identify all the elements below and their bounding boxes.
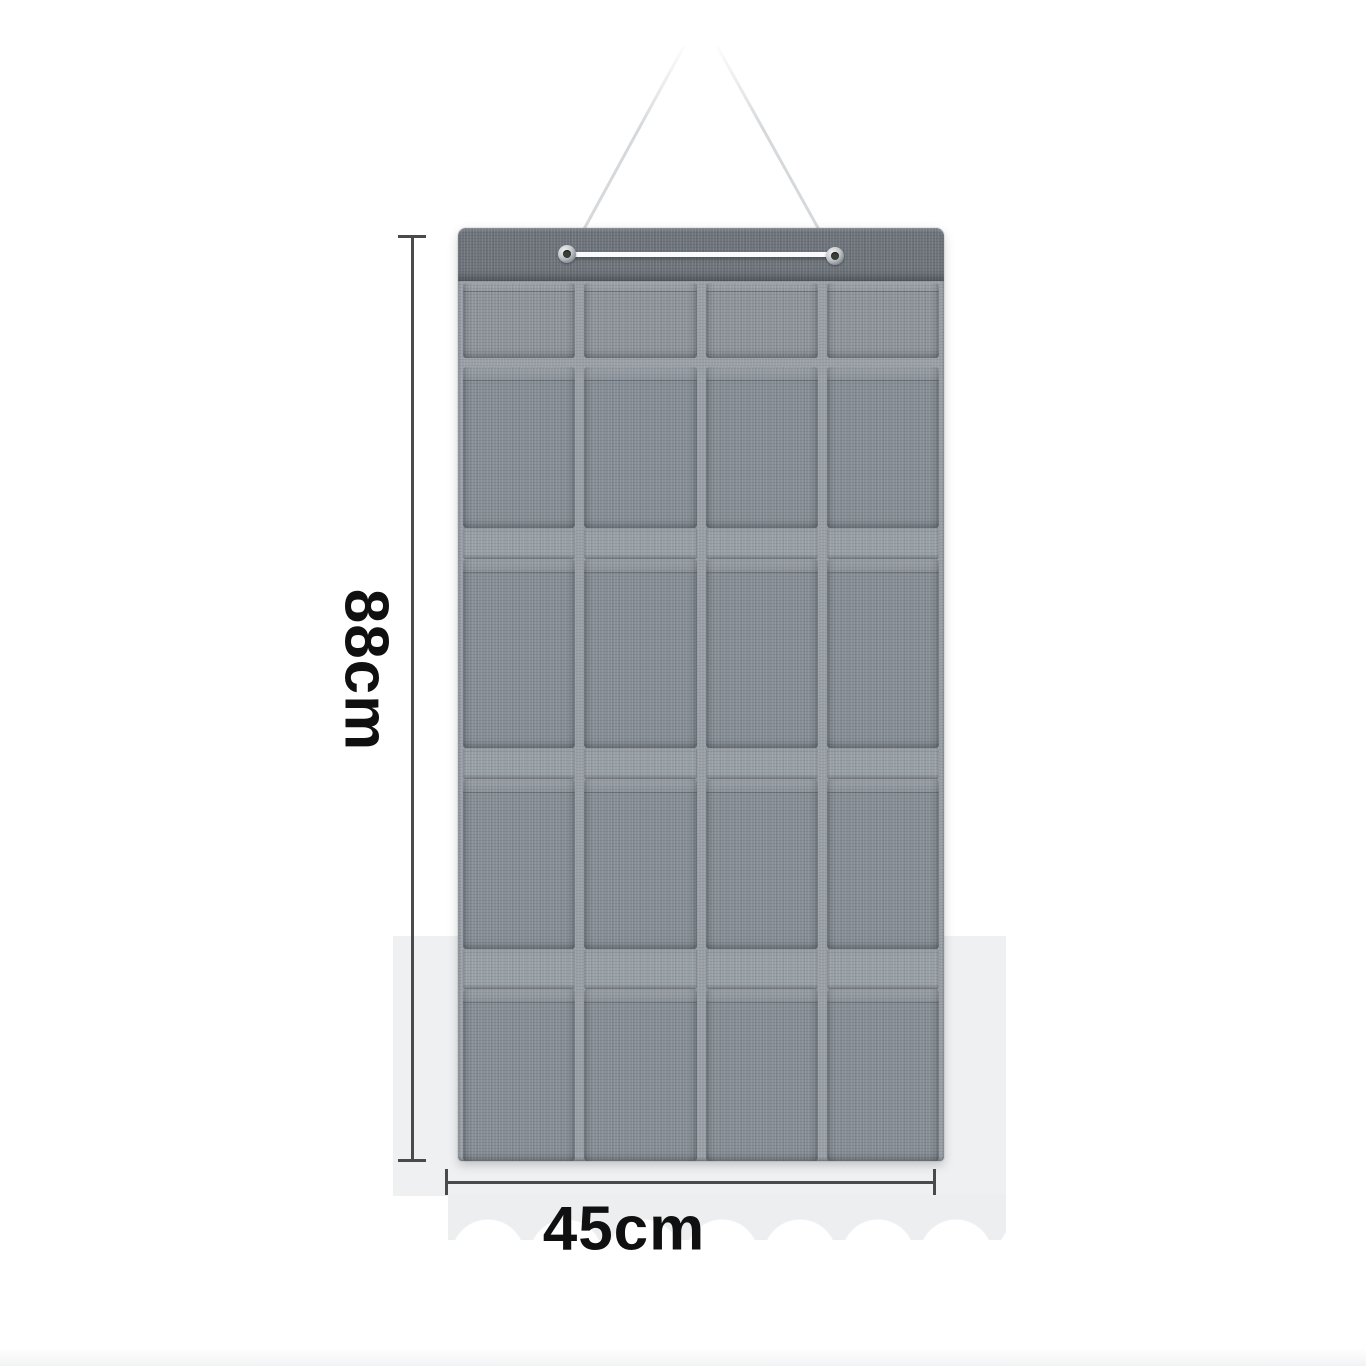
pocket-row-2	[463, 367, 939, 528]
pocket-row-1	[463, 283, 939, 358]
hem-rail-2	[463, 748, 939, 779]
pocket	[584, 779, 696, 949]
hanging-cord	[570, 252, 832, 257]
rail-seg	[706, 949, 818, 989]
pocket	[463, 559, 575, 748]
rail-seg	[706, 528, 818, 559]
hem-rail-1	[463, 528, 939, 559]
height-dimension-line	[411, 236, 414, 1162]
pocket	[706, 283, 818, 358]
rail-seg	[706, 748, 818, 779]
grommet-right	[826, 247, 844, 265]
pocket	[706, 367, 818, 528]
pocket	[827, 283, 939, 358]
pocket	[706, 779, 818, 949]
organizer-header-band	[458, 228, 944, 281]
rail-seg	[463, 528, 575, 559]
width-label: 45cm	[543, 1194, 706, 1265]
width-dimension-cap-right	[933, 1169, 936, 1195]
rail-seg	[463, 949, 575, 989]
product-photo: 88cm 45cm	[0, 0, 1366, 1366]
pocket	[706, 989, 818, 1161]
width-dimension-line	[446, 1181, 936, 1184]
rail-seg	[827, 949, 939, 989]
organizer-panel	[458, 228, 944, 1161]
pocket	[463, 367, 575, 528]
pocket	[827, 779, 939, 949]
pocket-row-5	[463, 989, 939, 1161]
pocket	[827, 559, 939, 748]
rail-seg	[584, 528, 696, 559]
rail-seg	[827, 528, 939, 559]
pocket	[827, 989, 939, 1161]
pocket-row-4	[463, 779, 939, 949]
pocket	[584, 283, 696, 358]
rail-seg	[827, 748, 939, 779]
rail-seg	[584, 949, 696, 989]
rail-seg	[584, 748, 696, 779]
width-dimension-cap-left	[445, 1169, 448, 1195]
height-dimension-cap-top	[398, 235, 426, 238]
hem-rail-3	[463, 949, 939, 989]
pocket	[584, 559, 696, 748]
rail-seg	[463, 748, 575, 779]
pocket	[584, 367, 696, 528]
grommet-hole	[563, 250, 571, 258]
pocket	[463, 989, 575, 1161]
pocket	[706, 559, 818, 748]
pocket	[463, 779, 575, 949]
pocket	[463, 283, 575, 358]
grommet-hole	[831, 252, 839, 260]
height-dimension-cap-bottom	[398, 1159, 426, 1162]
pocket	[584, 989, 696, 1161]
height-label: 88cm	[331, 589, 402, 752]
pocket-row-3	[463, 559, 939, 748]
pocket	[827, 367, 939, 528]
grommet-left	[558, 245, 576, 263]
